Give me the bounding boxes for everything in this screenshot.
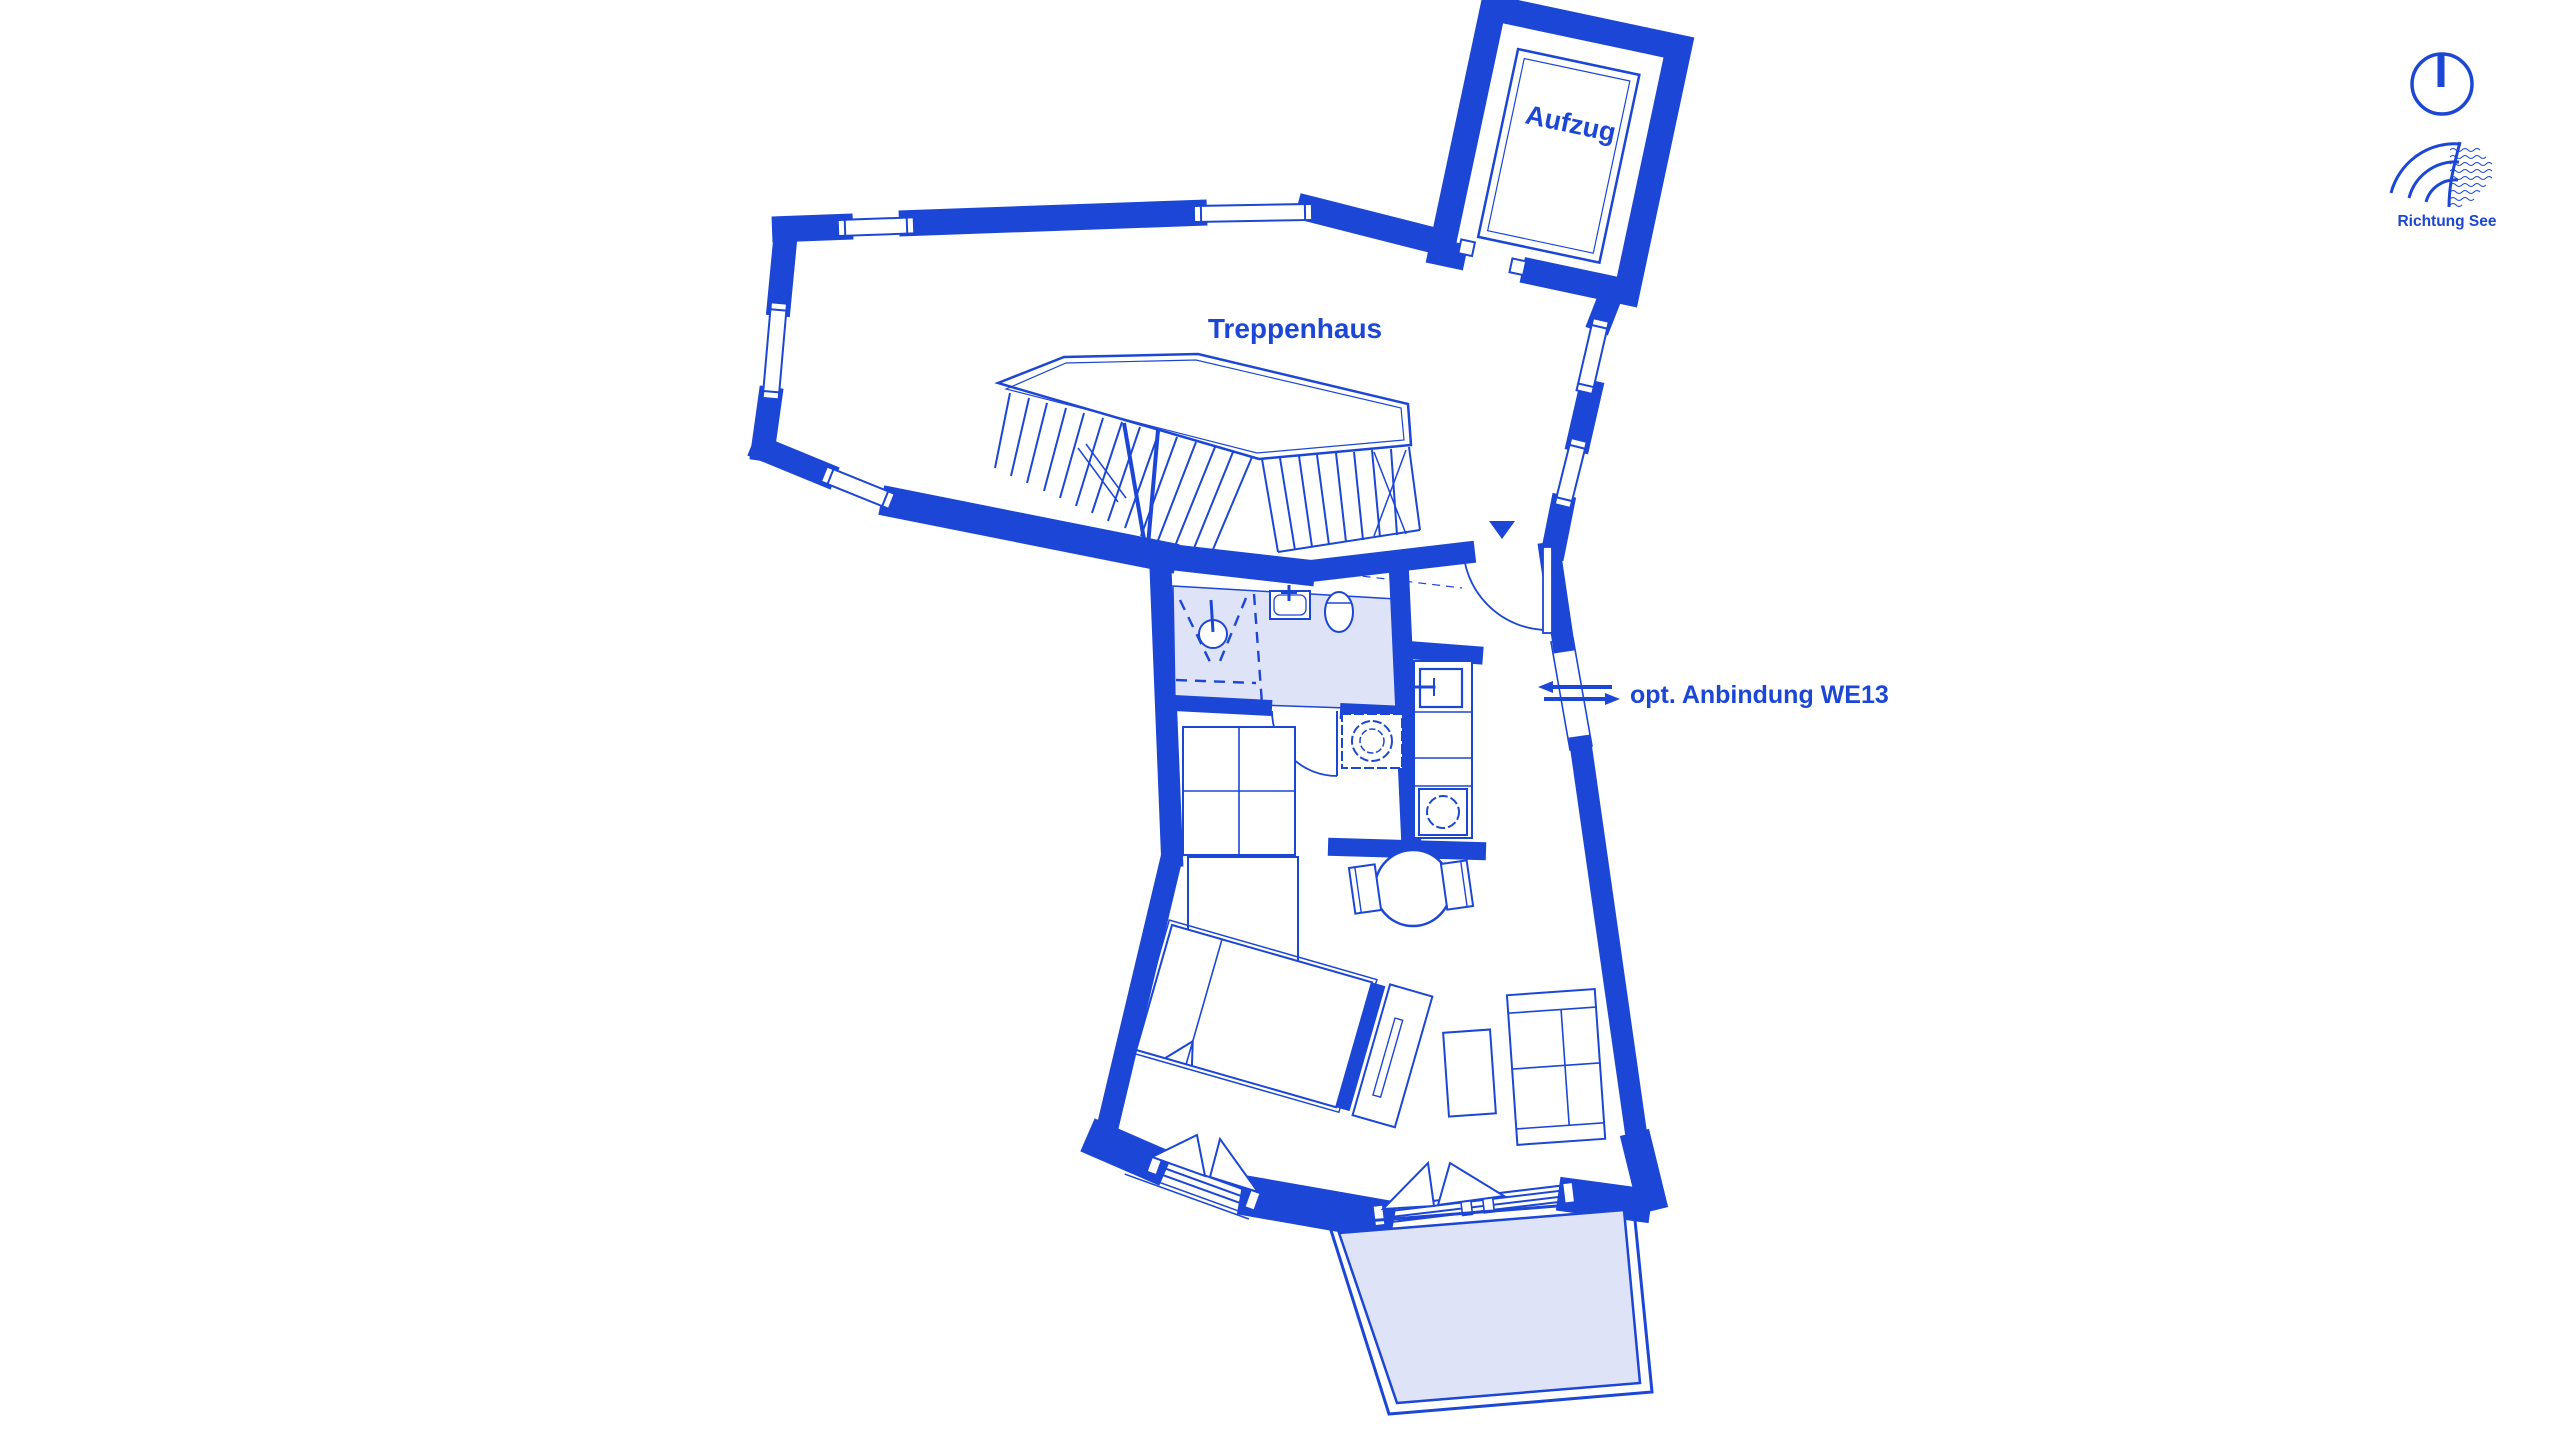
entrance-marker-icon [1489,521,1515,539]
kitchen-wall-stub [1408,650,1474,655]
wall-segment [1302,553,1464,572]
balcony [1329,1200,1652,1414]
stair-treads-right [1262,447,1420,552]
stairwell-label: Treppenhaus [1208,313,1382,344]
closets [1183,727,1298,963]
sofa [1507,989,1605,1145]
entry-door-swing [1463,545,1548,630]
stair-break-cross [1374,450,1406,536]
wall-segment [1160,556,1172,856]
shower-head [1211,600,1213,632]
chair [1349,864,1381,913]
window [1577,318,1609,394]
wall-segment [1260,1198,1374,1218]
window [1194,204,1312,222]
bathroom-bottom-wall [1174,703,1272,708]
dining-table [1375,850,1451,926]
coffee-table [1443,1029,1496,1116]
bed-mattress [1136,925,1372,1107]
chair [1441,860,1473,909]
apartment-entry [1463,521,1552,633]
window [838,217,915,236]
wall-segment [912,213,1194,223]
lake-direction-icon [2391,142,2492,207]
orientation-icons: Richtung See [2391,54,2497,230]
arrow-head-right-icon [1605,693,1620,705]
optional-connection-wall [1538,638,1620,750]
elevator-shaft: Aufzug [1438,8,1679,307]
window [821,467,895,509]
door-jamb [1458,239,1475,256]
wall-segment [1162,556,1302,572]
balcony-floor [1339,1210,1640,1403]
casement-triangle-icon [1210,1139,1258,1192]
wall-segment [763,449,824,474]
connection-label: opt. Anbindung WE13 [1630,681,1889,709]
wall-segment [1104,1142,1150,1162]
window [1555,438,1587,508]
toilet [1325,592,1353,632]
floor-plan-drawing: Aufzug [0,0,2560,1439]
window [763,302,787,399]
hatched-wall-section [1551,638,1592,750]
wall-segment [896,503,1162,556]
lake-direction-label: Richtung See [2397,213,2496,230]
stair-landing [998,354,1411,459]
door-jamb [1509,258,1526,275]
floor-plan-page: Aufzug [0,0,2560,1439]
wall-segment [779,231,786,304]
arrow-head-left-icon [1538,681,1553,693]
wall-segment [1579,392,1590,440]
casement-triangle-icon [1383,1163,1434,1209]
kitchen-partition-wall [1399,572,1411,836]
entry-door-leaf [1543,547,1552,633]
